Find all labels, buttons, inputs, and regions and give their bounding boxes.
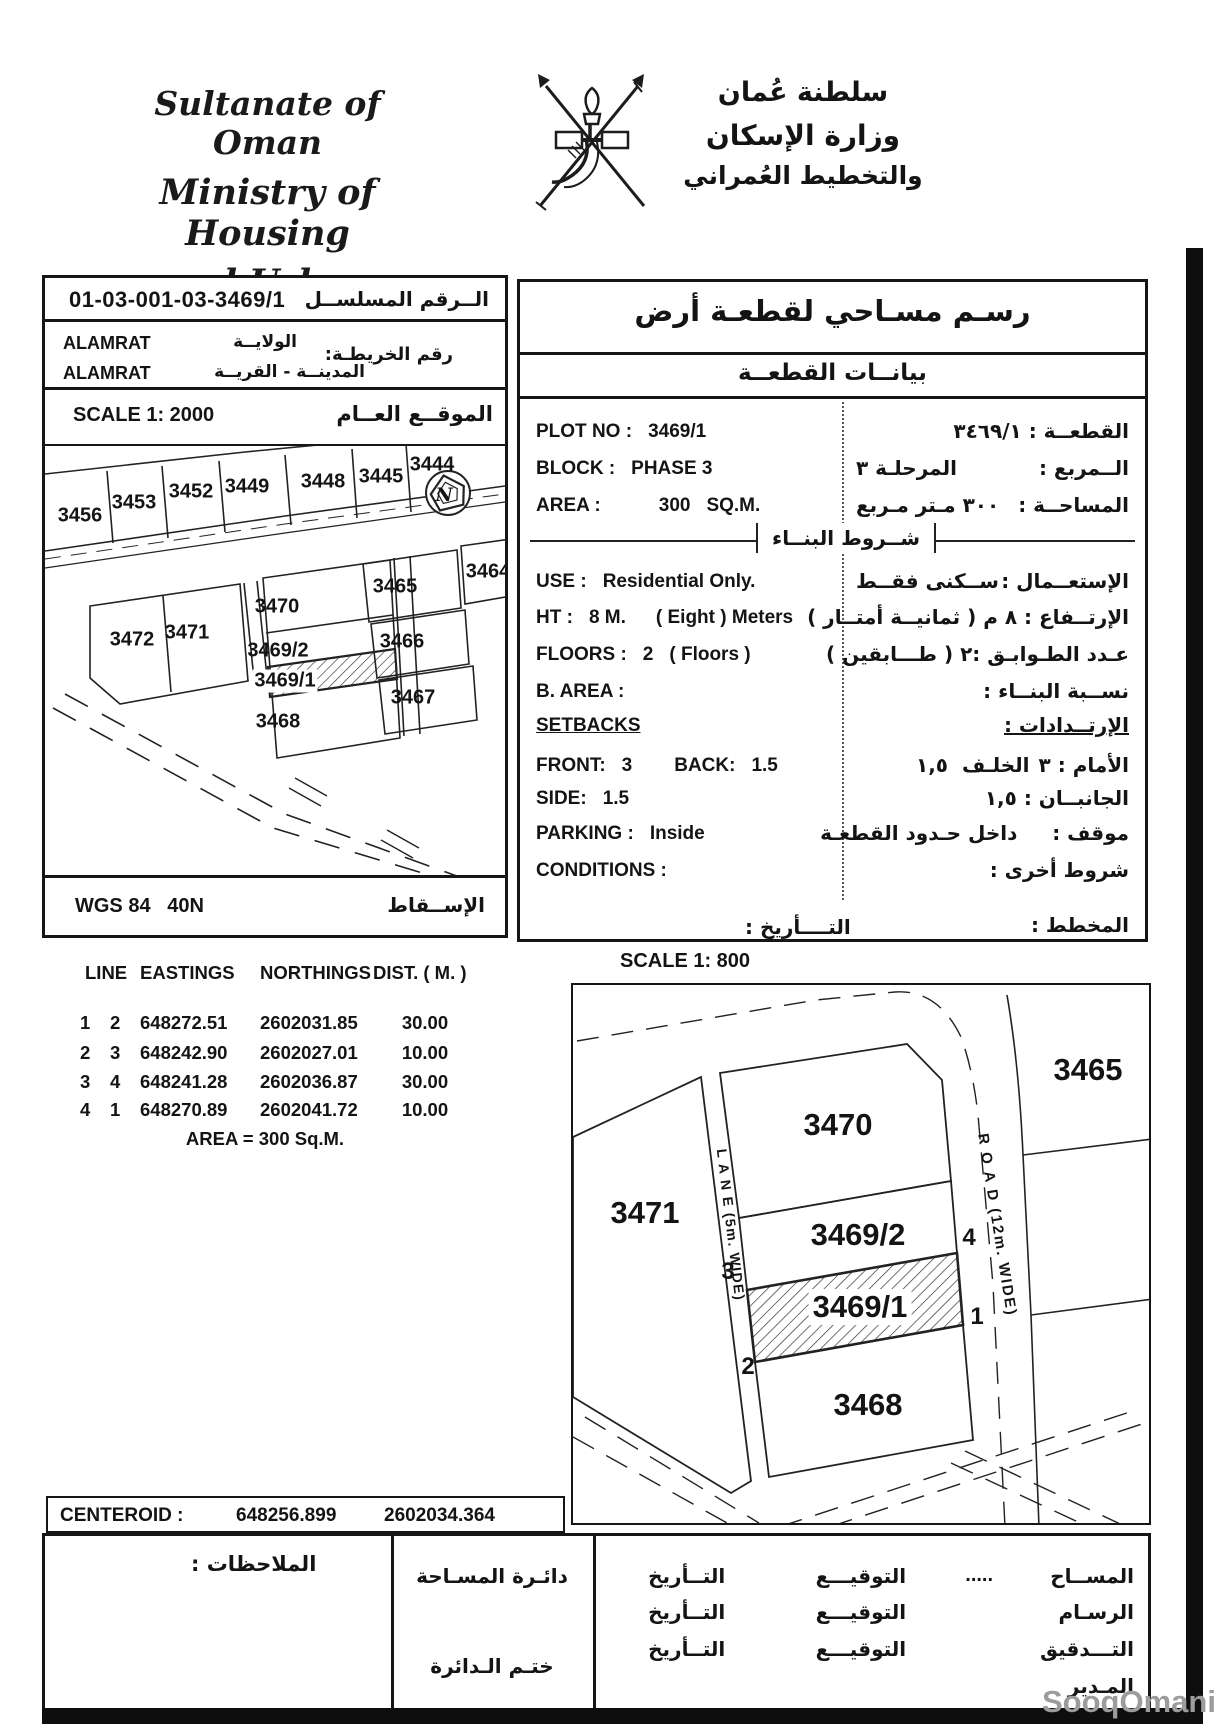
conditions-label-ar: شروط أخرى :	[990, 858, 1129, 882]
area-row-en: AREA : 300 SQ.M.	[536, 495, 760, 517]
detail-map-box: 3465 3470 3471 3469/2 3469/1 3468 1 2 3 …	[571, 983, 1151, 1525]
plot-label-3444: 3444	[410, 454, 455, 477]
height-label: HT :	[536, 607, 573, 629]
coordinates-table: LINE EASTINGS NORTHINGS DIST. ( M. ) 1 2…	[55, 950, 525, 1180]
draftsman-label: الرسـام	[1005, 1600, 1134, 1624]
surveyor-dots: .....	[953, 1564, 1005, 1588]
plot-no-label: PLOT NO :	[536, 421, 632, 443]
block-label: BLOCK :	[536, 458, 615, 480]
footer-divider-1	[391, 1536, 394, 1709]
plot-label-3469-2: 3469/2	[247, 640, 308, 663]
wilaya-label: الولايــة	[233, 332, 297, 352]
panel-title: رسـم مسـاحي لقطعـة أرض	[520, 294, 1145, 328]
plot-label-3448: 3448	[301, 471, 346, 494]
centeroid-box: CENTEROID : 648256.899 2602034.364	[46, 1496, 565, 1533]
side-ar: الجانبــان : ١,٥	[985, 786, 1129, 810]
plot-label-3456: 3456	[58, 505, 103, 528]
serial-number-box: 01-03-001-03-3469/1 الــرقم المسلســل	[42, 275, 508, 322]
r4-easting: 648270.89	[140, 1099, 227, 1121]
dept-stamp-label: ختـم الـدائرة	[397, 1654, 587, 1678]
front-value: 3	[622, 755, 633, 777]
height-row-ar: الإرتــفاع : ٨ م ( ثمانيــة أمتــار )	[856, 605, 1129, 629]
floors-row-ar: عـدد الطـوابـق : ٢ ( طـــابقين )	[856, 642, 1129, 666]
centeroid-label: CENTEROID :	[60, 1505, 184, 1527]
plot-label-3472: 3472	[110, 629, 155, 652]
conditions-label: CONDITIONS :	[536, 860, 667, 882]
surveyor-date-label: التــأريخ	[605, 1564, 768, 1588]
block-row-en: BLOCK : PHASE 3	[536, 458, 712, 480]
front-back-row-en: FRONT: 3 BACK: 1.5	[536, 755, 778, 777]
setbacks-row-ar: الإرتــدادات :	[856, 713, 1129, 737]
back-value-ar: الخلـف ١,٥	[916, 753, 1030, 777]
survey-document-page: { "header": { "org_lines": ["Sultanate o…	[0, 0, 1221, 1735]
corner-2: 2	[741, 1353, 754, 1381]
r4-to: 1	[110, 1099, 120, 1121]
city-village-label: المدينــة - القريــة	[214, 362, 365, 382]
divider	[520, 352, 1145, 355]
surveyor-label: المســاح	[1005, 1564, 1134, 1588]
floors-label-ar: عـدد الطـوابـق :	[972, 642, 1129, 666]
r4-northing: 2602041.72	[260, 1099, 358, 1121]
r3-easting: 648241.28	[140, 1071, 227, 1093]
area-label: AREA :	[536, 495, 601, 517]
area-value-ar: ٣٠٠ مـتر مـربع	[856, 493, 999, 517]
front-back-row-ar: الأمام : ٣ الخلـف ١,٥	[856, 753, 1129, 777]
ministry-name-arabic-calligraphy: سلطنة عُمان وزارة الإسكان والتخطيط العُم…	[664, 72, 942, 196]
location-map-area: 3456 3453 3452 3449 3448 3445 3444 N 346…	[45, 446, 505, 875]
back-value: 1.5	[751, 755, 777, 777]
corner-4: 4	[962, 1224, 975, 1252]
plot-data-panel: رسـم مسـاحي لقطعـة أرض بيانــات القطعــة…	[517, 279, 1148, 942]
checking-signature-label: التوقيـــع	[768, 1637, 953, 1661]
area-row-ar: المساحــة : ٣٠٠ مـتر مـربع	[856, 493, 1129, 517]
plot-label-3469-1: 3469/1	[252, 670, 317, 693]
front-label: FRONT:	[536, 755, 606, 777]
dplot-3470: 3470	[804, 1107, 873, 1143]
wilaya-value: ALAMRAT	[63, 333, 151, 354]
dplot-3468: 3468	[834, 1387, 903, 1423]
side-row-en: SIDE: 1.5	[536, 788, 629, 810]
city-village-value: ALAMRAT	[63, 363, 151, 384]
r2-dist: 10.00	[385, 1042, 465, 1064]
sign-row-checker: التـــدقيق التوقيـــع التــأريخ	[605, 1637, 1134, 1661]
footer-divider-2	[593, 1536, 596, 1709]
parking-row-ar: موقف : داخل حـدود القطعـة	[856, 821, 1129, 845]
r4-dist: 10.00	[385, 1099, 465, 1121]
r1-easting: 648272.51	[140, 1012, 227, 1034]
checking-date-label: التــأريخ	[605, 1637, 768, 1661]
date-label: التــــأريخ :	[745, 915, 851, 939]
serial-number-label: الــرقم المسلســل	[305, 287, 489, 311]
dplot-3469-1: 3469/1	[809, 1289, 912, 1325]
r2-easting: 648242.90	[140, 1042, 227, 1064]
r1-to: 2	[110, 1012, 120, 1034]
conditions-row-en: CONDITIONS :	[536, 860, 667, 882]
floors-note: ( Floors )	[669, 644, 750, 666]
r3-dist: 30.00	[385, 1071, 465, 1093]
dplot-3465: 3465	[1054, 1052, 1123, 1088]
use-row-en: USE : Residential Only.	[536, 571, 755, 593]
r2-from: 2	[80, 1042, 90, 1064]
r2-northing: 2602027.01	[260, 1042, 358, 1064]
r4-from: 4	[80, 1099, 90, 1121]
area-label-ar: المساحــة :	[1018, 493, 1129, 517]
setbacks-label-ar: الإرتــدادات :	[1004, 713, 1129, 737]
org-line-2: Ministry of Housing	[95, 172, 440, 254]
location-map-header: SCALE 1: 2000 الموقــع العــام	[45, 390, 505, 446]
plot-label-3465: 3465	[373, 576, 418, 599]
checking-label: التـــدقيق	[1005, 1637, 1134, 1661]
projection-box: WGS 84 40N الإســقاط	[42, 875, 508, 938]
parking-label: PARKING :	[536, 823, 634, 845]
side-label: SIDE:	[536, 788, 587, 810]
panel-subtitle: بيانــات القطعــة	[520, 360, 1145, 386]
floors-label: FLOORS :	[536, 644, 627, 666]
page-edge-bottom	[42, 1708, 1203, 1724]
parking-value: Inside	[650, 823, 705, 845]
director-sig	[768, 1674, 953, 1698]
b-area-label-ar: نســبة البنــاء :	[983, 679, 1129, 703]
org-line-1: Sultanate of Oman	[95, 84, 440, 162]
col-eastings: EASTINGS	[140, 962, 235, 984]
detail-map-scale: SCALE 1: 800	[620, 950, 750, 973]
oman-emblem-icon	[512, 66, 672, 226]
survey-dept-label: دائـرة المسـاحة	[397, 1564, 587, 1588]
use-value-ar: ســكنى فقــط	[856, 569, 999, 593]
conditions-row-ar: شروط أخرى :	[856, 858, 1129, 882]
b-area-row-ar: نســبة البنــاء :	[856, 679, 1129, 703]
plot-label-3453: 3453	[112, 492, 157, 515]
plot-label-3464: 3464	[466, 561, 505, 584]
height-ar: الإرتــفاع : ٨ م ( ثمانيــة أمتــار )	[807, 605, 1129, 629]
use-row-ar: الإستعــمال : ســكنى فقــط	[856, 569, 1129, 593]
plot-label-3471: 3471	[165, 622, 210, 645]
parking-ar: موقف : داخل حـدود القطعـة	[820, 821, 1129, 845]
centeroid-easting: 648256.899	[236, 1505, 336, 1527]
page-edge-right	[1186, 248, 1203, 1722]
location-map-title: الموقــع العــام	[336, 402, 493, 426]
front-label-ar: الأمام : ٣	[1039, 753, 1129, 777]
projection-value: WGS 84 40N	[75, 895, 204, 918]
floors-value-ar: ٢ ( طـــابقين )	[826, 642, 972, 666]
location-map-box: SCALE 1: 2000 الموقــع العــام	[42, 387, 508, 878]
centeroid-northing: 2602034.364	[384, 1505, 495, 1527]
parking-row-en: PARKING : Inside	[536, 823, 705, 845]
area-note: AREA = 300 Sq.M.	[155, 1128, 375, 1150]
calligraphy-line-3: والتخطيط العُمراني	[664, 157, 942, 196]
use-label-ar: الإستعــمال :	[1001, 569, 1129, 593]
plot-label-3467: 3467	[391, 687, 436, 710]
block-label-ar: الــمربع :	[1039, 456, 1129, 480]
use-value: Residential Only.	[603, 571, 756, 593]
plan-label: المخطط :	[1031, 913, 1129, 937]
notes-label: الملاحظات :	[191, 1552, 316, 1576]
building-conditions-title: شــروط البنــاء	[756, 523, 936, 553]
r3-from: 3	[80, 1071, 90, 1093]
draftsman-signature-label: التوقيـــع	[768, 1600, 953, 1624]
height-row-en: HT : 8 M. ( Eight ) Meters	[536, 607, 793, 629]
b-area-label: B. AREA :	[536, 681, 624, 703]
projection-label: الإســقاط	[387, 893, 485, 917]
b-area-row-en: B. AREA :	[536, 681, 624, 703]
draftsman-dots	[953, 1600, 1005, 1624]
north-arrow-letter: N	[435, 484, 452, 506]
col-northings: NORTHINGS	[260, 962, 371, 984]
plot-no-row-en: PLOT NO : 3469/1	[536, 421, 706, 443]
sign-row-draftsman: الرسـام التوقيـــع التــأريخ	[605, 1600, 1134, 1624]
back-label: BACK:	[674, 755, 735, 777]
block-value: PHASE 3	[631, 458, 712, 480]
watermark: SooqOmani	[1042, 1684, 1216, 1720]
corner-1: 1	[970, 1303, 983, 1331]
col-dist: DIST. ( M. )	[373, 962, 467, 984]
setbacks-label: SETBACKS	[536, 715, 641, 737]
r3-northing: 2602036.87	[260, 1071, 358, 1093]
signature-footer: الملاحظات : دائـرة المسـاحة ختـم الـدائر…	[42, 1533, 1151, 1712]
plot-label-3468: 3468	[256, 711, 301, 734]
plot-label-3449: 3449	[225, 476, 270, 499]
map-number-label: رقم الخريطـة:	[325, 344, 453, 365]
height-value: 8 M.	[589, 607, 626, 629]
plot-label-3470: 3470	[255, 596, 300, 619]
setbacks-row-en: SETBACKS	[536, 715, 641, 737]
area-value: 300	[659, 495, 691, 517]
director-date	[605, 1674, 768, 1698]
r3-to: 4	[110, 1071, 120, 1093]
height-note: ( Eight ) Meters	[656, 607, 793, 629]
divider	[520, 396, 1145, 399]
r1-from: 1	[80, 1012, 90, 1034]
region-box: ALAMRAT الولايــة ALAMRAT المدينــة - ال…	[42, 319, 508, 390]
serial-number-value: 01-03-001-03-3469/1	[69, 287, 285, 313]
floors-row-en: FLOORS : 2 ( Floors )	[536, 644, 751, 666]
r1-northing: 2602031.85	[260, 1012, 358, 1034]
calligraphy-line-2: وزارة الإسكان	[664, 114, 942, 157]
r1-dist: 30.00	[385, 1012, 465, 1034]
director-dots	[953, 1674, 1005, 1698]
plot-label-3466: 3466	[380, 631, 425, 654]
calligraphy-line-1: سلطنة عُمان	[664, 72, 942, 114]
plot-no-row-ar: القطعــة : ٣٤٦٩/١	[856, 419, 1129, 443]
sign-row-surveyor: المســاح ..... التوقيـــع التــأريخ	[605, 1564, 1134, 1588]
plot-no-ar: القطعــة : ٣٤٦٩/١	[953, 419, 1129, 443]
floors-value: 2	[643, 644, 654, 666]
location-map-scale: SCALE 1: 2000	[73, 404, 214, 427]
plot-label-3452: 3452	[169, 481, 214, 504]
block-row-ar: الــمربع : المرحلـة ٣	[856, 456, 1129, 480]
surveyor-signature-label: التوقيـــع	[768, 1564, 953, 1588]
plot-label-3445: 3445	[359, 466, 404, 489]
side-value: 1.5	[603, 788, 629, 810]
dplot-3469-2: 3469/2	[811, 1217, 906, 1253]
area-unit: SQ.M.	[706, 495, 760, 517]
draftsman-date-label: التــأريخ	[605, 1600, 768, 1624]
checking-dots	[953, 1637, 1005, 1661]
r2-to: 3	[110, 1042, 120, 1064]
use-label: USE :	[536, 571, 587, 593]
block-value-ar: المرحلـة ٣	[856, 456, 957, 480]
col-line: LINE	[85, 962, 127, 984]
dplot-3471: 3471	[611, 1195, 680, 1231]
plot-no-value: 3469/1	[648, 421, 706, 443]
side-row-ar: الجانبــان : ١,٥	[856, 786, 1129, 810]
